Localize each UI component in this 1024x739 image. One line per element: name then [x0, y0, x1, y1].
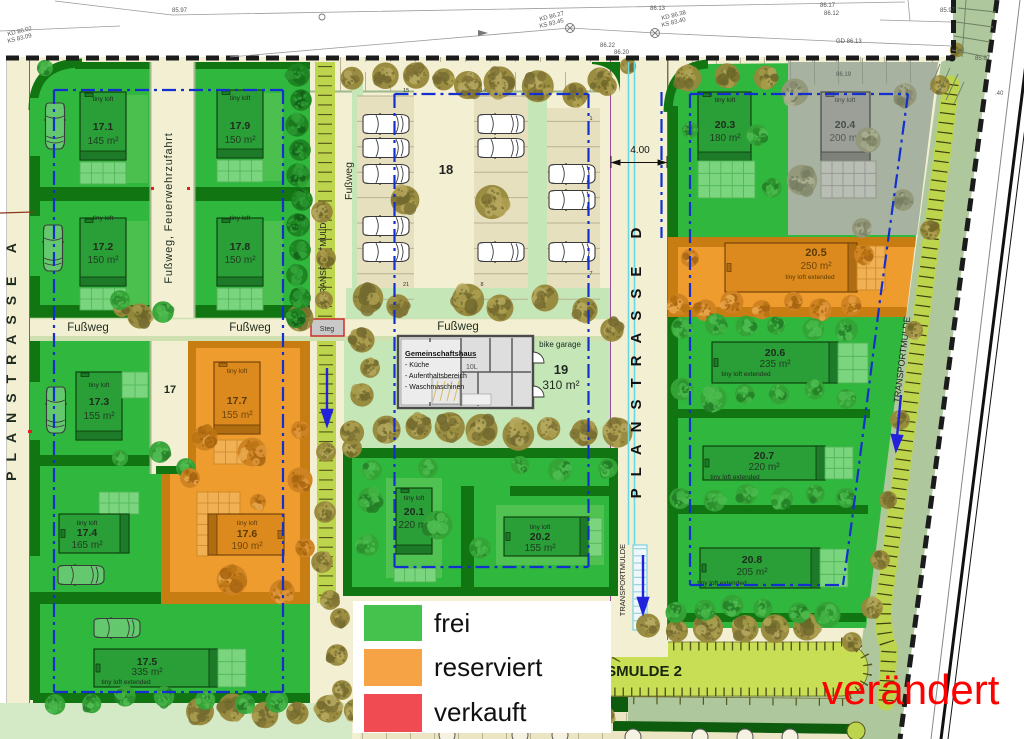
svg-text:tiny loft: tiny loft [93, 96, 114, 103]
svg-text:85.87: 85.87 [975, 56, 991, 62]
svg-text:220 m²: 220 m² [748, 462, 780, 473]
svg-text:165 m²: 165 m² [71, 540, 103, 551]
svg-text:Fußweg: Fußweg [437, 321, 479, 333]
svg-text:- Küche: - Küche [405, 362, 429, 369]
svg-text:150 m²: 150 m² [224, 255, 256, 266]
svg-text:17.9: 17.9 [230, 120, 251, 132]
svg-text:20.4: 20.4 [835, 119, 856, 131]
svg-text:86.17: 86.17 [820, 3, 836, 9]
svg-text:21: 21 [403, 282, 409, 288]
svg-text:17.4: 17.4 [77, 527, 98, 539]
svg-text:86.20: 86.20 [614, 50, 630, 56]
svg-text:1: 1 [589, 116, 592, 122]
svg-text:155 m²: 155 m² [83, 411, 115, 422]
svg-text:86.13: 86.13 [650, 6, 666, 12]
svg-text:17.7: 17.7 [227, 395, 248, 407]
svg-text:- Aufenthaltsbereich: - Aufenthaltsbereich [405, 373, 467, 380]
svg-text:20.3: 20.3 [715, 119, 736, 131]
svg-text:tiny loft extended: tiny loft extended [101, 679, 151, 686]
svg-text:tiny loft: tiny loft [77, 520, 98, 527]
svg-text:Fußweg: Fußweg [343, 162, 355, 200]
svg-text:86.22: 86.22 [600, 43, 616, 49]
svg-text:85.97: 85.97 [940, 8, 956, 14]
svg-text:10L: 10L [466, 364, 478, 371]
svg-text:reserviert: reserviert [434, 652, 543, 682]
svg-text:335 m²: 335 m² [131, 667, 163, 678]
svg-text:verkauft: verkauft [434, 697, 527, 727]
svg-text:tiny loft: tiny loft [715, 97, 736, 104]
svg-text:4.00: 4.00 [630, 145, 650, 156]
svg-text:86.19: 86.19 [836, 72, 852, 78]
svg-text:17.8: 17.8 [230, 241, 251, 253]
svg-text:155 m²: 155 m² [524, 543, 556, 554]
svg-text:tiny loft extended: tiny loft extended [721, 371, 771, 378]
svg-text:250 m²: 250 m² [800, 261, 832, 272]
svg-text:frei: frei [434, 608, 470, 638]
svg-text:- Waschmaschinen: - Waschmaschinen [405, 384, 464, 391]
svg-text:verändert: verändert [822, 666, 1000, 713]
svg-text:tiny loft: tiny loft [404, 495, 425, 502]
svg-text:TRANSPORTMULDE: TRANSPORTMULDE [618, 544, 627, 616]
svg-text:17.3: 17.3 [89, 396, 110, 408]
svg-text:7: 7 [589, 271, 592, 277]
svg-text:tiny loft: tiny loft [227, 368, 248, 375]
svg-text:Steg: Steg [320, 326, 335, 333]
svg-text:Fußweg: Fußweg [67, 322, 109, 334]
svg-text:180 m²: 180 m² [709, 133, 741, 144]
svg-text:8: 8 [480, 282, 483, 288]
svg-text:GD 86.13: GD 86.13 [836, 39, 862, 45]
svg-text:145 m²: 145 m² [87, 136, 119, 147]
svg-text:18: 18 [439, 162, 453, 177]
svg-text:20.2: 20.2 [530, 531, 551, 543]
svg-text:150 m²: 150 m² [87, 255, 119, 266]
svg-text:17.1: 17.1 [93, 121, 114, 133]
svg-text:20.1: 20.1 [404, 506, 425, 518]
svg-text:tiny loft extended: tiny loft extended [710, 474, 760, 481]
svg-text:17.2: 17.2 [93, 241, 114, 253]
svg-text:19: 19 [554, 362, 568, 377]
svg-text:tiny loft: tiny loft [230, 215, 251, 222]
svg-text:17.6: 17.6 [237, 528, 258, 540]
svg-text:20.6: 20.6 [765, 347, 786, 359]
svg-text:155 m²: 155 m² [221, 410, 253, 421]
svg-text:PLANSTRASSE D: PLANSTRASSE D [628, 216, 645, 499]
svg-text:.40: .40 [995, 91, 1004, 97]
svg-text:Fußweg: Fußweg [229, 322, 271, 334]
svg-text:310 m²: 310 m² [542, 378, 579, 392]
svg-text:tiny loft: tiny loft [835, 97, 856, 104]
svg-text:bike garage: bike garage [539, 340, 581, 349]
svg-text:PLANSTRASSE A: PLANSTRASSE A [3, 233, 19, 481]
svg-text:190 m²: 190 m² [231, 541, 263, 552]
svg-text:tiny loft: tiny loft [230, 95, 251, 102]
svg-text:86.12: 86.12 [824, 11, 840, 17]
svg-text:20.5: 20.5 [805, 247, 826, 259]
svg-text:17: 17 [164, 384, 176, 396]
svg-text:85.97: 85.97 [172, 8, 188, 14]
svg-text:tiny loft extended: tiny loft extended [785, 274, 835, 281]
svg-text:235 m²: 235 m² [759, 359, 791, 370]
svg-text:150 m²: 150 m² [224, 135, 256, 146]
svg-text:tiny loft: tiny loft [530, 524, 551, 531]
svg-text:20.8: 20.8 [742, 554, 763, 566]
svg-text:tiny loft: tiny loft [93, 215, 114, 222]
svg-text:20.7: 20.7 [754, 450, 775, 462]
svg-text:tiny loft: tiny loft [89, 382, 110, 389]
svg-text:205 m²: 205 m² [736, 567, 768, 578]
svg-text:Gemeinschaftshaus: Gemeinschaftshaus [405, 349, 476, 358]
svg-text:tiny loft: tiny loft [237, 520, 258, 527]
svg-text:Fußweg, Feuerwehrzufahrt: Fußweg, Feuerwehrzufahrt [163, 132, 175, 283]
